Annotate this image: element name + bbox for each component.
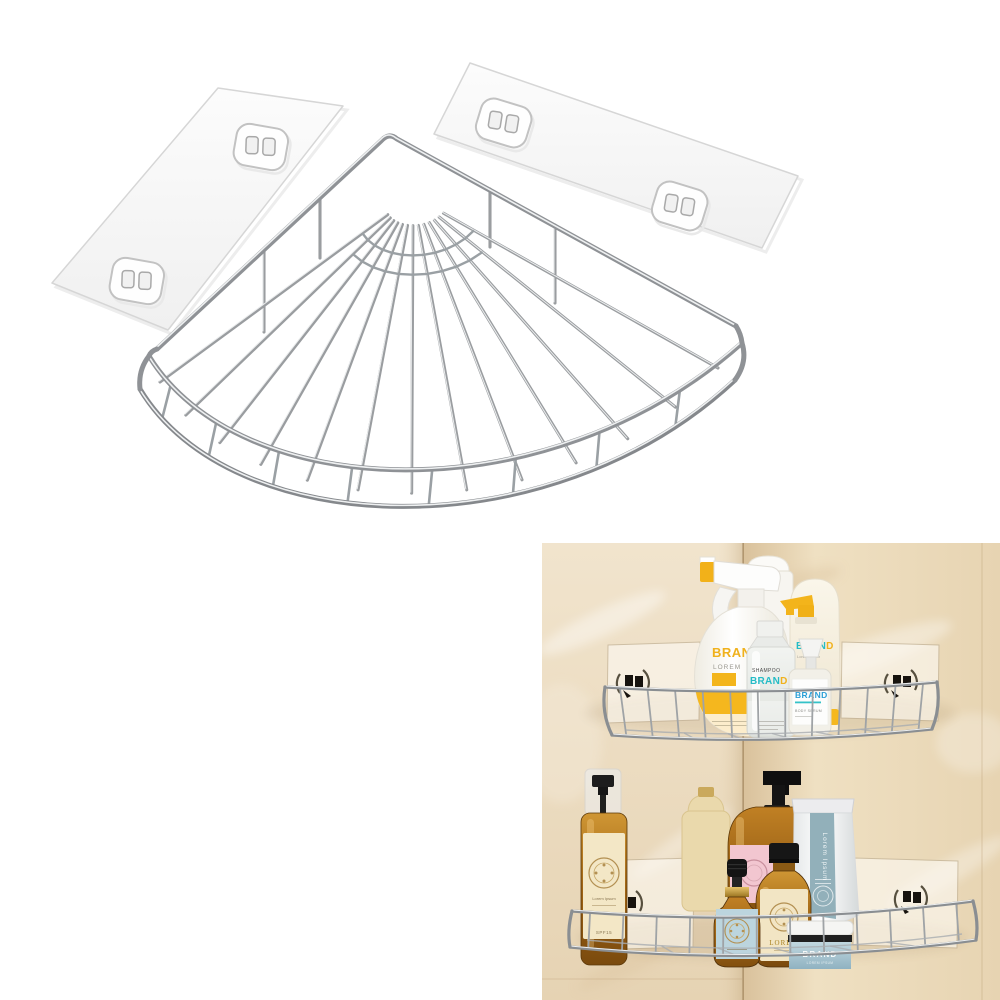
rim-tick — [162, 385, 171, 419]
basket-wire — [358, 225, 407, 489]
rim-tick — [209, 422, 217, 457]
svg-text:SPF15: SPF15 — [596, 930, 612, 935]
rim-tick — [812, 690, 813, 738]
rim-tick — [758, 691, 759, 739]
rim-tick — [273, 451, 279, 487]
rim-tick — [689, 917, 690, 955]
black-cap — [769, 843, 799, 861]
spray-nozzle — [592, 775, 614, 787]
inner-arc — [362, 230, 474, 255]
bathroom-inset-photo: BRAND Lorem ipsum BRAND LOR — [542, 543, 1000, 1000]
rim-tick — [347, 467, 352, 503]
spray-nozzle — [700, 562, 715, 582]
adhesive-pad — [853, 858, 958, 948]
rim-tick — [429, 469, 433, 506]
gold-collar — [725, 887, 749, 897]
amber-spray-bottle: Lorem Ipsum SPF15 — [581, 769, 627, 965]
basket-wire — [220, 221, 394, 443]
svg-text:BRAND: BRAND — [750, 676, 788, 687]
cream-bottle — [682, 787, 730, 911]
jar-lid — [787, 921, 853, 935]
adhesive-pad — [841, 642, 939, 721]
rim-tick — [596, 431, 599, 468]
svg-text:SHAMPOO: SHAMPOO — [752, 668, 780, 674]
tube-cap — [792, 799, 854, 813]
svg-text:BODY SERUM: BODY SERUM — [795, 709, 822, 713]
rim-tick — [513, 458, 516, 495]
jar-band — [788, 935, 852, 942]
corner-shelf-product-render — [0, 0, 1000, 540]
svg-text:Lorem Ipsum: Lorem Ipsum — [821, 833, 828, 882]
adhesive-pad — [607, 642, 700, 723]
svg-text:LOREM: LOREM — [713, 664, 741, 671]
product-image-canvas: BRAND Lorem ipsum BRAND LOR — [0, 0, 1000, 1000]
svg-text:LOREM IPSUM: LOREM IPSUM — [807, 961, 834, 965]
svg-text:Lorem Ipsum: Lorem Ipsum — [592, 896, 616, 901]
rim-tick — [823, 915, 824, 954]
rim-tick — [656, 916, 657, 953]
